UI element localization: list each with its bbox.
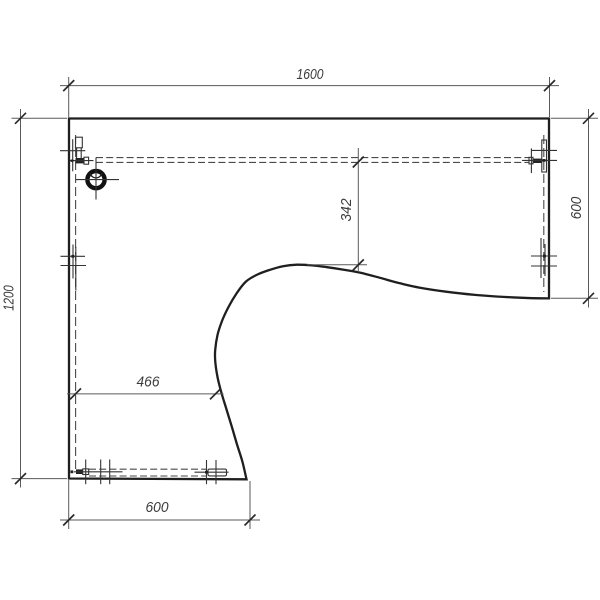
- svg-text:600: 600: [146, 500, 169, 516]
- svg-text:600: 600: [569, 197, 585, 220]
- svg-text:466: 466: [137, 375, 161, 391]
- svg-text:1200: 1200: [2, 285, 18, 311]
- svg-text:342: 342: [339, 199, 355, 222]
- svg-text:1600: 1600: [297, 67, 324, 83]
